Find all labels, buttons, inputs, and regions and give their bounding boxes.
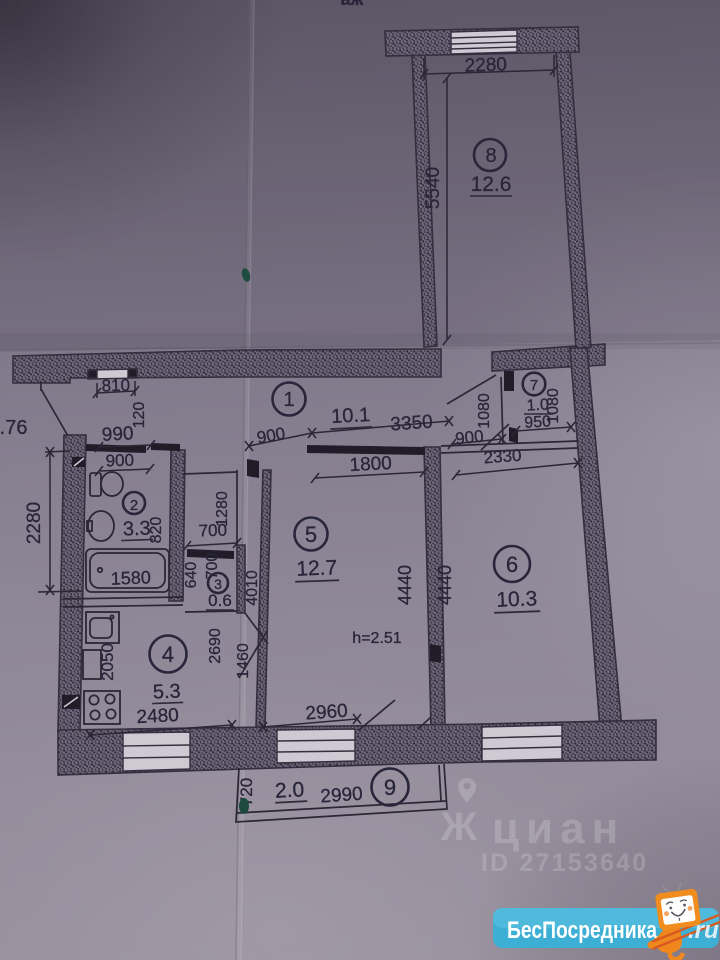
svg-text:8.76: 8.76 [0,417,27,439]
svg-text:4440: 4440 [395,565,415,605]
svg-text:820: 820 [148,517,165,544]
svg-text:900: 900 [105,451,134,471]
svg-text:1580: 1580 [110,567,151,588]
svg-text:1: 1 [283,389,294,411]
svg-text:2280: 2280 [24,502,45,544]
svg-text:6: 6 [506,552,518,577]
svg-text:12.6: 12.6 [471,173,512,196]
svg-text:2280: 2280 [464,54,507,76]
svg-text:2330: 2330 [483,446,522,468]
svg-text:2960: 2960 [305,701,349,725]
svg-text:ID 27153640: ID 27153640 [481,849,648,877]
svg-text:2050: 2050 [98,643,117,681]
svg-text:аж: аж [341,0,364,9]
svg-text:1460: 1460 [235,643,252,679]
svg-text:120: 120 [131,402,148,429]
svg-text:12.7: 12.7 [296,556,338,580]
svg-text:2480: 2480 [136,705,179,728]
svg-text:2990: 2990 [320,784,364,808]
svg-text:1280: 1280 [214,491,231,527]
svg-text:7: 7 [530,377,538,394]
svg-text:3: 3 [214,576,222,592]
svg-text:циан: циан [492,804,625,853]
svg-text:3350: 3350 [390,412,434,436]
svg-text:10.1: 10.1 [331,404,371,428]
svg-text:4: 4 [162,642,174,667]
svg-text:h=2.51: h=2.51 [352,630,401,647]
svg-text:1800: 1800 [349,453,392,476]
svg-text:900: 900 [255,424,286,448]
svg-text:5.3: 5.3 [153,681,182,704]
svg-text:1080: 1080 [545,388,562,424]
svg-text:5540: 5540 [423,167,444,209]
svg-text:9: 9 [384,775,396,800]
svg-text:2690: 2690 [207,628,224,664]
svg-text:Ж: Ж [440,805,478,849]
svg-text:2: 2 [130,497,138,514]
svg-text:.ru: .ru [688,917,719,944]
svg-text:10.3: 10.3 [496,587,538,611]
svg-text:990: 990 [101,423,134,446]
svg-text:4440: 4440 [435,565,455,605]
svg-text:БесПосредника: БесПосредника [507,917,658,944]
svg-text:8: 8 [485,145,496,167]
svg-text:5: 5 [305,522,317,547]
svg-text:2.0: 2.0 [274,778,304,802]
svg-text:3.3: 3.3 [123,518,152,541]
svg-text:4010: 4010 [244,570,261,606]
svg-text:810: 810 [101,376,130,396]
svg-text:900: 900 [454,427,484,449]
svg-text:640: 640 [183,562,200,589]
svg-text:1080: 1080 [476,393,493,429]
